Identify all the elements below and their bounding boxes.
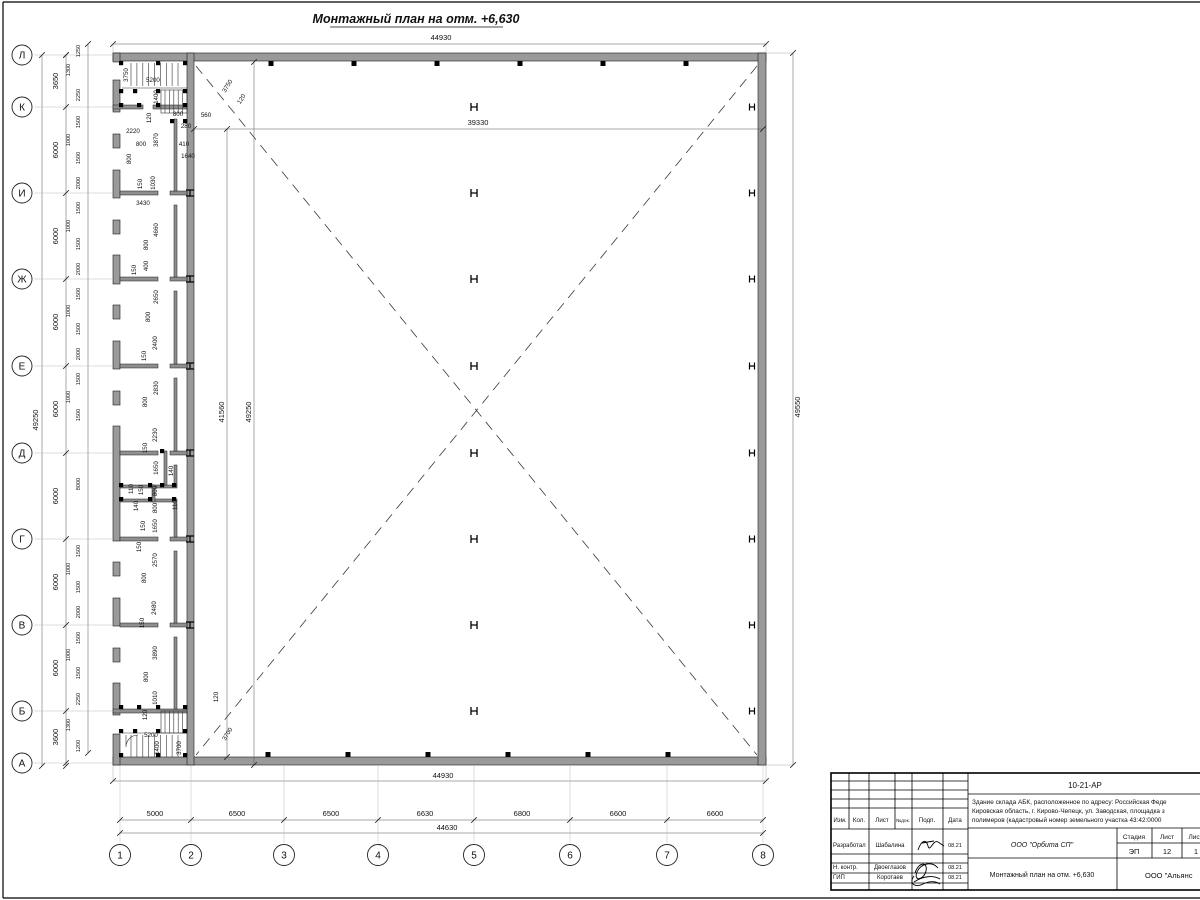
titleblock-name: Двоеглазов bbox=[874, 865, 906, 871]
axis-span-dim: 6000 bbox=[51, 142, 60, 159]
dim-hall-width: 39330 bbox=[468, 118, 489, 127]
stage-label: Стадия bbox=[1123, 834, 1146, 841]
chain-dim-label: 1300 bbox=[66, 719, 72, 731]
annotation-label: 800 bbox=[152, 502, 159, 513]
annotation-label: 1650 bbox=[153, 461, 160, 475]
chain-dim-label: 1500 bbox=[76, 373, 82, 385]
address-line-1: Здание склада АБК, расположенное по адре… bbox=[972, 798, 1167, 806]
chain-dim-label: 1500 bbox=[76, 409, 82, 421]
annotation-label: 2570 bbox=[152, 553, 159, 567]
annotation-label: 110 bbox=[172, 500, 179, 510]
chain-dim-label: 1500 bbox=[76, 581, 82, 593]
titleblock-date: 08.21 bbox=[948, 865, 962, 871]
axis-span-dim: 6000 bbox=[51, 660, 60, 677]
axis-label-bottom: 6 bbox=[567, 851, 573, 862]
column-marker-wall-right bbox=[750, 708, 755, 715]
column-marker-wall-right bbox=[750, 622, 755, 629]
axis-label-bottom: 8 bbox=[760, 851, 766, 862]
titleblock-date: 08.21 bbox=[948, 843, 962, 849]
annotation-label: 2400 bbox=[152, 336, 159, 350]
dim-bottom-inner: 44930 bbox=[433, 771, 454, 780]
annotation-label: 3750 bbox=[123, 68, 130, 82]
annotation-label: 150 bbox=[139, 617, 146, 628]
wall-post bbox=[352, 61, 357, 66]
axis-span-dim: 6000 bbox=[51, 228, 60, 245]
axis-label-left: Г bbox=[19, 535, 25, 546]
axis-span-dim: 6000 bbox=[51, 401, 60, 418]
axis-label-left: Д bbox=[19, 449, 26, 460]
wall-post bbox=[586, 752, 591, 757]
titleblock-name: Коротаев bbox=[877, 875, 903, 881]
axis-span-dim: 6000 bbox=[51, 314, 60, 331]
column-marker bbox=[471, 707, 477, 715]
annotation-label: 800 bbox=[136, 141, 147, 148]
annotation-label: 150 bbox=[142, 442, 149, 453]
wall-post bbox=[269, 61, 274, 66]
bottom-segment-dim: 6600 bbox=[610, 809, 627, 818]
annotation-label: 3750 bbox=[221, 78, 235, 94]
column-marker-wall-right bbox=[750, 276, 755, 283]
axis-span-dim: 6000 bbox=[51, 574, 60, 591]
column-marker-wall-right bbox=[750, 363, 755, 370]
annotation-label: 5200 bbox=[144, 732, 158, 739]
wall-post bbox=[506, 752, 511, 757]
annotation-label: 400 bbox=[143, 260, 150, 271]
annotation-label: 280 bbox=[181, 123, 192, 130]
titleblock-header-col: Изм. bbox=[833, 817, 847, 824]
titleblock-header-col: Кол. bbox=[853, 817, 866, 824]
annotation-label: 3700 bbox=[176, 741, 183, 755]
wall-post bbox=[684, 61, 689, 66]
chain-dim-label: 1500 bbox=[76, 202, 82, 214]
axis-label-left: Л bbox=[19, 51, 26, 62]
annotation-label: 5200 bbox=[146, 77, 160, 84]
chain-dim-label: 1000 bbox=[66, 305, 72, 317]
chain-dim-label: 8000 bbox=[76, 478, 82, 490]
annotation-label: 120 bbox=[146, 112, 153, 123]
chain-dim-label: 2250 bbox=[76, 89, 82, 101]
door-swing-arc bbox=[126, 735, 138, 747]
chain-dim-label: 2000 bbox=[76, 606, 82, 618]
chain-dim-label: 1000 bbox=[66, 391, 72, 403]
annotation-label: 800 bbox=[126, 153, 133, 164]
annotation-label: 120 bbox=[236, 93, 248, 106]
chain-dim-label: 1000 bbox=[66, 134, 72, 146]
annotation-label: 3870 bbox=[153, 133, 160, 147]
chain-dim-label: 1300 bbox=[66, 64, 72, 76]
axis-label-left: Е bbox=[19, 362, 26, 373]
column-marker bbox=[471, 621, 477, 629]
signature-approvers bbox=[912, 864, 940, 886]
annotation-label: 2220 bbox=[126, 128, 140, 135]
axis-span-dim: 3600 bbox=[51, 729, 60, 746]
annotation-label: 800 bbox=[145, 311, 152, 322]
floor-plan-canvas: Монтажный план на отм. +6,630 bbox=[0, 0, 1200, 900]
sheet-value: 12 bbox=[1163, 847, 1171, 856]
doc-number: 10-21-АР bbox=[1068, 781, 1102, 790]
axis-label-left: К bbox=[19, 103, 25, 114]
titleblock-header-col: №док. bbox=[896, 818, 910, 824]
bottom-segment-dim: 6800 bbox=[514, 809, 531, 818]
bottom-segment-dim: 5000 bbox=[147, 809, 164, 818]
signature-developer bbox=[918, 841, 944, 850]
annotation-label: 2830 bbox=[153, 381, 160, 395]
stage-value: ЭП bbox=[1129, 847, 1140, 856]
titleblock-role: Разработал bbox=[833, 843, 866, 849]
wall-post bbox=[435, 61, 440, 66]
annotation-label: 110 bbox=[128, 484, 135, 494]
sheet-label: Лист bbox=[1160, 834, 1174, 841]
axis-span-dim: 6000 bbox=[51, 488, 60, 505]
annotation-label: 150 bbox=[138, 484, 145, 495]
wall-post bbox=[601, 61, 606, 66]
axis-label-bottom: 3 bbox=[281, 851, 287, 862]
chain-dim-label: 1000 bbox=[66, 563, 72, 575]
annotation-label: 410 bbox=[179, 141, 190, 148]
chain-dim-label: 1000 bbox=[66, 220, 72, 232]
annotation-label: 1650 bbox=[152, 519, 159, 533]
titleblock-header-col: Дата bbox=[948, 817, 962, 824]
chain-dim-label: 1500 bbox=[76, 116, 82, 128]
annotation-label: 800 bbox=[143, 671, 150, 682]
dim-right-overall: 49550 bbox=[793, 397, 802, 418]
column-marker-wall-right bbox=[750, 104, 755, 111]
column-marker-wall-right bbox=[750, 190, 755, 197]
annotation-label: 3430 bbox=[136, 200, 150, 207]
annotation-label: 3700 bbox=[221, 726, 235, 742]
axis-span-dim: 3650 bbox=[51, 73, 60, 90]
address-line-3: полимеров (кадастровый номер земельного … bbox=[972, 816, 1162, 824]
drawing-title: Монтажный план на отм. +6,630 bbox=[990, 871, 1095, 879]
annotation-label: 150 bbox=[141, 350, 148, 361]
annotation-label: 2650 bbox=[153, 290, 160, 304]
chain-dim-label: 1500 bbox=[76, 667, 82, 679]
column-marker-wall-right bbox=[750, 536, 755, 543]
titleblock-role: Н. контр. bbox=[833, 865, 858, 871]
annotation-label: 150 bbox=[131, 264, 138, 275]
chain-dim-label: 1250 bbox=[76, 45, 82, 57]
wall-post bbox=[426, 752, 431, 757]
walls bbox=[113, 53, 766, 765]
chain-dim-label: 2250 bbox=[76, 693, 82, 705]
wall-post bbox=[266, 752, 271, 757]
chain-dim-label: 1200 bbox=[76, 740, 82, 752]
chain-dim-label: 1500 bbox=[76, 632, 82, 644]
chain-dim-label: 1500 bbox=[76, 288, 82, 300]
axis-label-left: А bbox=[19, 759, 26, 770]
dim-top-overall: 44930 bbox=[431, 33, 452, 42]
annotation-label: 2230 bbox=[152, 428, 159, 442]
axis-label-left: И bbox=[18, 189, 25, 200]
title-block: 10-21-АР Здание склада АБК, расположенно… bbox=[831, 773, 1200, 890]
axis-label-bottom: 7 bbox=[664, 851, 670, 862]
annotation-label: 1400 bbox=[154, 741, 161, 755]
dim-bottom-overall: 44630 bbox=[437, 823, 458, 832]
annotation-label: 120 bbox=[142, 709, 149, 720]
annotation-label: 140 bbox=[133, 500, 140, 511]
annotation-label: 560 bbox=[201, 112, 212, 119]
annotation-label: 800 bbox=[141, 572, 148, 583]
axis-label-left: В bbox=[19, 621, 26, 632]
annotation-label: 150 bbox=[136, 541, 143, 552]
chain-dim-label: 1500 bbox=[76, 545, 82, 557]
annotation-label: 4660 bbox=[153, 223, 160, 237]
annotation-label: 1010 bbox=[152, 691, 159, 705]
axis-label-left: Б bbox=[19, 707, 26, 718]
dim-hall-h1: 41560 bbox=[217, 402, 226, 423]
bottom-segment-dim: 6630 bbox=[417, 809, 434, 818]
wall-post bbox=[518, 61, 523, 66]
axis-label-bottom: 2 bbox=[188, 851, 194, 862]
chain-dim-label: 2000 bbox=[76, 263, 82, 275]
bottom-segment-dim: 6500 bbox=[229, 809, 246, 818]
column-marker bbox=[471, 535, 477, 543]
titleblock-date: 08.21 bbox=[948, 875, 962, 881]
annotation-label: 1030 bbox=[150, 176, 157, 190]
chain-dim-label: 1500 bbox=[76, 152, 82, 164]
wall-post bbox=[666, 752, 671, 757]
annotation-label: 140 bbox=[168, 465, 175, 476]
dim-left-overall: 49250 bbox=[31, 410, 40, 431]
annotation-label: 800 bbox=[143, 239, 150, 250]
chain-dim-label: 2000 bbox=[76, 348, 82, 360]
sheets-value: 1 bbox=[1194, 847, 1198, 856]
annotation-label: 800 bbox=[152, 485, 159, 496]
chain-dim-label: 1500 bbox=[76, 238, 82, 250]
dim-hall-h2: 49250 bbox=[244, 402, 253, 423]
axis-label-bottom: 5 bbox=[471, 851, 477, 862]
column-marker bbox=[471, 103, 477, 111]
annotation-label: 800 bbox=[142, 396, 149, 407]
annotation-label: 800 bbox=[173, 111, 184, 118]
chain-dim-label: 1000 bbox=[66, 649, 72, 661]
annotation-label: 150 bbox=[137, 178, 144, 189]
titleblock-header-col: Подп. bbox=[919, 817, 936, 824]
bottom-segment-dim: 6500 bbox=[323, 809, 340, 818]
project-address: Здание склада АБК, расположенное по адре… bbox=[972, 798, 1167, 824]
axis-label-bottom: 1 bbox=[117, 851, 123, 862]
column-marker bbox=[471, 189, 477, 197]
annotation-label: 150 bbox=[140, 520, 147, 531]
address-line-2: Кировская область, г. Кирово-Чепецк, ул.… bbox=[972, 807, 1165, 815]
partitions bbox=[113, 105, 187, 713]
chain-dim-label: 1500 bbox=[76, 323, 82, 335]
column-marker bbox=[471, 275, 477, 283]
annotation-label: 120 bbox=[213, 691, 220, 702]
axis-label-bottom: 4 bbox=[375, 851, 381, 862]
plan-title: Монтажный план на отм. +6,630 bbox=[313, 12, 520, 26]
annotation-label: 1400 bbox=[153, 90, 160, 104]
titleblock-header-col: Лист bbox=[875, 817, 889, 824]
titleblock-name: Шабалина bbox=[876, 843, 906, 849]
annotation-label: 1640 bbox=[181, 153, 195, 160]
sheets-label: Листов bbox=[1188, 834, 1200, 841]
drawing-sheet: Монтажный план на отм. +6,630 bbox=[0, 0, 1200, 900]
bottom-segment-dim: 6600 bbox=[707, 809, 724, 818]
axis-label-left: Ж bbox=[17, 275, 27, 286]
titleblock-role: ГИП bbox=[833, 875, 845, 881]
column-marker bbox=[471, 449, 477, 457]
column-marker bbox=[471, 362, 477, 370]
column-marker-wall-right bbox=[750, 450, 755, 457]
annotation-label: 3890 bbox=[152, 646, 159, 660]
chain-dim-label: 2000 bbox=[76, 177, 82, 189]
org-name: ООО "Орбита СП" bbox=[1011, 841, 1074, 849]
wall-post bbox=[346, 752, 351, 757]
roof-bracing bbox=[196, 66, 757, 755]
company-name: ООО "Альянс bbox=[1145, 871, 1193, 880]
annotation-label: 2480 bbox=[151, 601, 158, 615]
